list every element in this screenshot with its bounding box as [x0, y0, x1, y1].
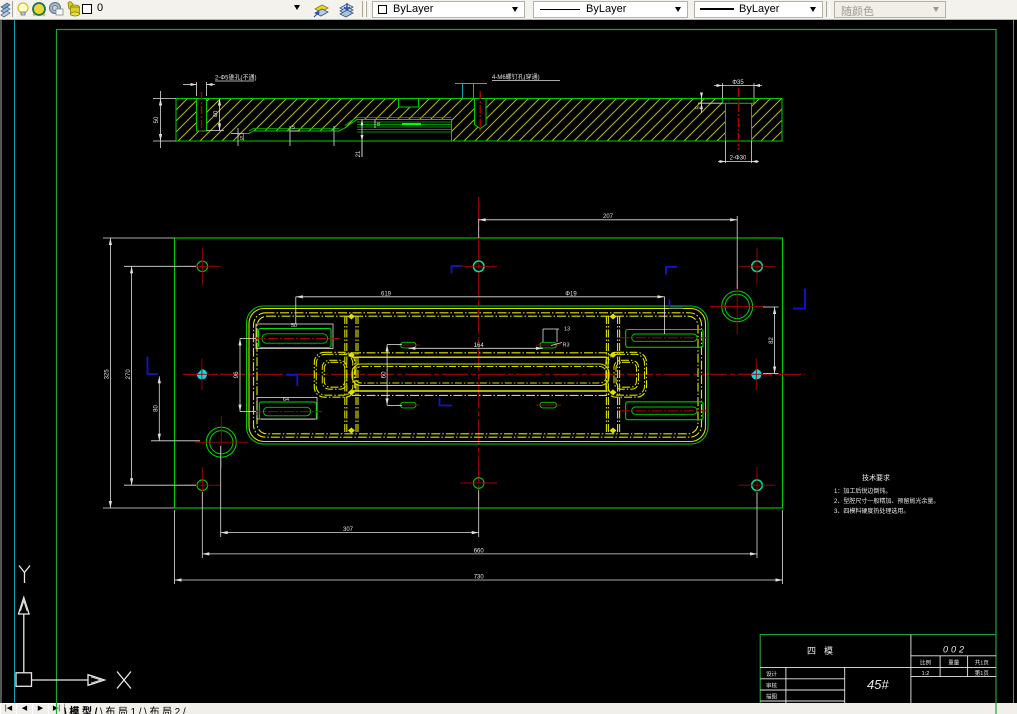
svg-text:3、四模料硬度热处理选用。: 3、四模料硬度热处理选用。	[834, 507, 909, 515]
svg-text:2-Φ5锥孔(不通): 2-Φ5锥孔(不通)	[215, 74, 256, 82]
svg-text:第1页: 第1页	[975, 669, 990, 677]
svg-text:共1页: 共1页	[975, 659, 990, 667]
svg-text:R3: R3	[563, 343, 570, 349]
svg-text:21: 21	[356, 150, 362, 157]
svg-text:325: 325	[105, 369, 111, 380]
svg-text:设计: 设计	[766, 670, 778, 678]
svg-text:四模: 四模	[807, 646, 841, 656]
svg-text:80: 80	[153, 405, 159, 412]
svg-text:96: 96	[234, 371, 240, 378]
svg-text:207: 207	[603, 214, 614, 220]
svg-text:2-Φ30: 2-Φ30	[730, 156, 747, 162]
svg-text:描图: 描图	[766, 693, 778, 701]
svg-text:307: 307	[343, 527, 354, 533]
svg-text:660: 660	[474, 549, 485, 555]
svg-text:8: 8	[377, 122, 380, 128]
svg-text:1：加工后锐边倒钝。: 1：加工后锐边倒钝。	[834, 487, 891, 495]
svg-text:164: 164	[474, 343, 485, 349]
svg-text:5: 5	[240, 136, 243, 142]
svg-text:40: 40	[214, 110, 220, 117]
svg-text:技术要求: 技术要求	[862, 473, 890, 482]
svg-text:Φ19: Φ19	[565, 291, 577, 297]
svg-text:5: 5	[292, 125, 295, 131]
svg-text:审核: 审核	[766, 681, 778, 689]
svg-text:Φ35: Φ35	[732, 80, 744, 86]
svg-text:1:2: 1:2	[922, 671, 930, 677]
svg-text:730: 730	[474, 575, 485, 581]
svg-text:270: 270	[126, 369, 132, 380]
svg-text:64: 64	[283, 397, 289, 403]
svg-text:45#: 45#	[867, 677, 889, 692]
svg-text:82: 82	[769, 337, 775, 344]
svg-text:60: 60	[381, 371, 387, 378]
svg-text:13: 13	[564, 327, 570, 333]
svg-text:比例: 比例	[920, 659, 932, 667]
svg-text:002: 002	[943, 645, 967, 655]
svg-text:50: 50	[154, 116, 160, 123]
svg-text:2、型腔尺寸一般精加、预留抛光余量。: 2、型腔尺寸一般精加、预留抛光余量。	[834, 497, 939, 505]
svg-text:重量: 重量	[948, 659, 960, 667]
svg-text:619: 619	[381, 291, 392, 297]
svg-text:4-M6螺钉孔(穿通): 4-M6螺钉孔(穿通)	[492, 73, 540, 81]
